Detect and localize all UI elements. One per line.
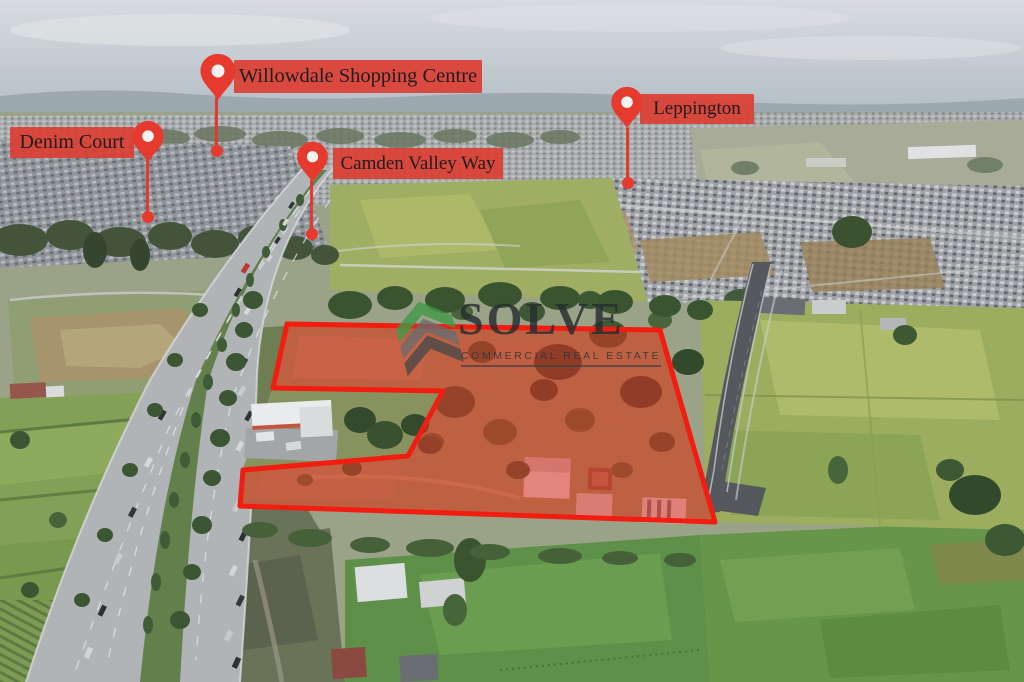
willowdale-label: Willowdale Shopping Centre: [234, 60, 482, 93]
leppington-pin-icon: [610, 86, 644, 129]
camden-valley-way-label-text: Camden Valley Way: [340, 153, 495, 174]
leppington-pin-dot: [622, 177, 634, 189]
leppington-label: Leppington: [640, 94, 754, 124]
willowdale-pin-icon: [199, 53, 237, 101]
leppington-label-text: Leppington: [653, 98, 741, 119]
mid-fields: [330, 178, 648, 302]
leppington-pin-stem: [626, 128, 629, 179]
willowdale-label-text: Willowdale Shopping Centre: [239, 65, 477, 87]
denim-court-label-text: Denim Court: [20, 131, 125, 153]
denim-court-label: Denim Court: [10, 127, 134, 158]
denim-court-pin-dot: [142, 211, 154, 223]
camden-valley-way-pin-icon: [296, 141, 329, 183]
denim-court-pin-icon: [131, 120, 165, 163]
camden-valley-way-label: Camden Valley Way: [333, 148, 503, 179]
aerial-scene: [0, 0, 1024, 682]
camden-valley-way-pin-stem: [310, 180, 313, 230]
denim-court-pin-stem: [146, 160, 149, 212]
willowdale-pin-stem: [215, 97, 218, 148]
aerial-photo: SOLVE COMMERCIAL REAL ESTATE Willowdale …: [0, 0, 1024, 682]
camden-valley-way-pin-dot: [306, 228, 318, 240]
sky: [0, 0, 1024, 128]
willowdale-pin-dot: [211, 145, 223, 157]
